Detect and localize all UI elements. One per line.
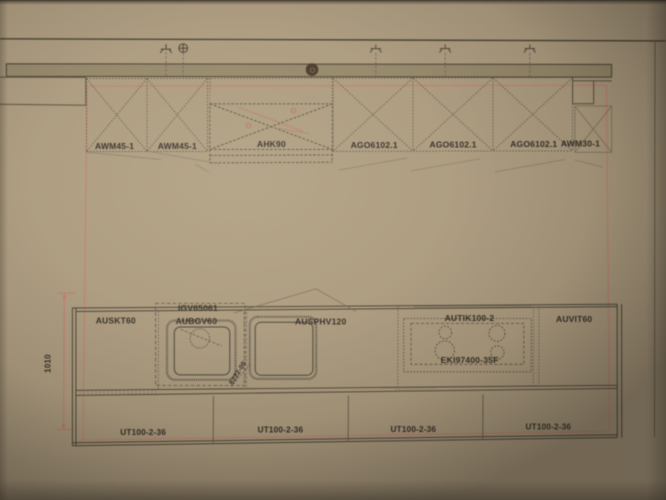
svg-text:AWM45-1: AWM45-1 [95,141,134,151]
svg-text:AUVIT60: AUVIT60 [556,314,592,324]
svg-text:AUBGV60: AUBGV60 [176,316,218,326]
svg-text:EKI97400-35F: EKI97400-35F [441,355,499,365]
svg-text:AUSKT60: AUSKT60 [96,315,136,325]
svg-text:AUTIK100-2: AUTIK100-2 [445,313,495,323]
svg-text:AGO6102.1: AGO6102.1 [351,140,398,150]
svg-text:IGV65061: IGV65061 [178,303,218,313]
svg-text:UT100-2-36: UT100-2-36 [391,425,437,434]
svg-text:AWM45-1: AWM45-1 [158,141,197,151]
svg-text:UT100-2-36: UT100-2-36 [258,426,304,435]
svg-text:1010: 1010 [44,354,53,373]
svg-text:AGO6102.1: AGO6102.1 [510,139,557,149]
svg-text:AGO6102.1: AGO6102.1 [430,139,477,149]
svg-text:AHK90: AHK90 [257,139,286,149]
svg-text:AWM30-1: AWM30-1 [561,139,600,149]
svg-text:UT100-2-36: UT100-2-36 [526,422,572,431]
svg-text:AUSPHV120: AUSPHV120 [295,317,346,327]
svg-text:UT100-2-36: UT100-2-36 [120,428,166,437]
